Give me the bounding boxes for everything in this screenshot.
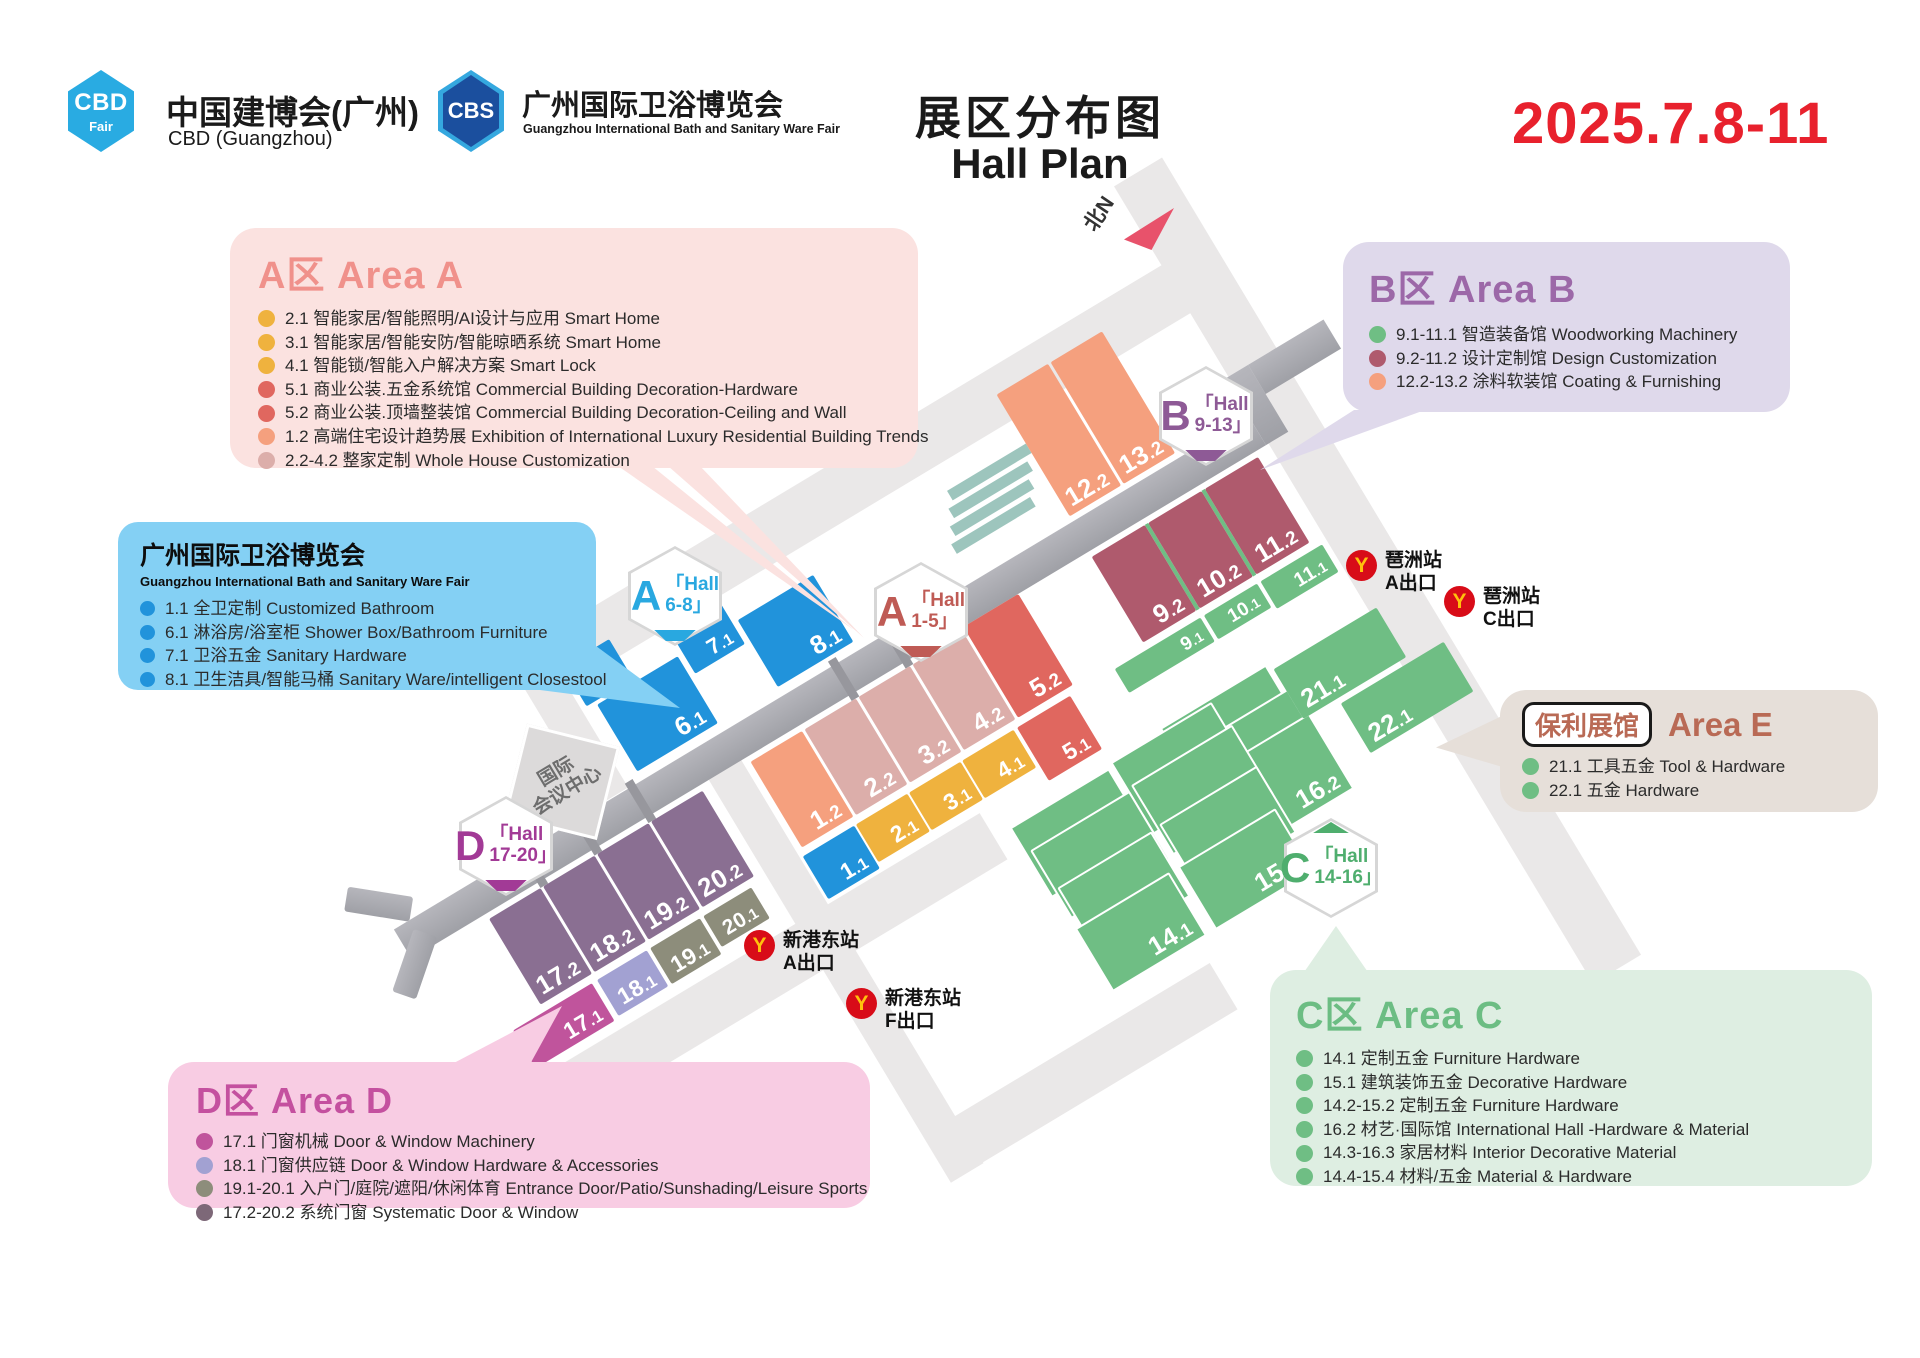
legend-dot-icon xyxy=(1296,1145,1313,1162)
legend-item: 4.1 智能锁/智能入户解决方案 Smart Lock xyxy=(258,354,918,378)
badge-letter: A xyxy=(877,591,907,633)
legend-item: 3.1 智能家居/智能安防/智能晾晒系统 Smart Home xyxy=(258,331,918,355)
street-bottom xyxy=(927,963,1238,1179)
legend-dot-icon xyxy=(258,334,275,351)
metro-logo-icon: Y xyxy=(1346,550,1377,581)
hall-label: 16.2 xyxy=(1291,767,1344,813)
legend-dot-icon xyxy=(258,310,275,327)
hall-label: 19.1 xyxy=(667,936,714,977)
legend-item: 1.1 全卫定制 Customized Bathroom xyxy=(140,597,596,621)
legend-item-text: 3.1 智能家居/智能安防/智能晾晒系统 Smart Home xyxy=(285,331,661,355)
legend-item: 9.1-11.1 智造装备馆 Woodworking Machinery xyxy=(1369,323,1790,347)
hall-label: 5.2 xyxy=(1025,664,1065,703)
legend-area-a-title: A区 Area A xyxy=(258,244,918,299)
legend-item-text: 15.1 建筑装饰五金 Decorative Hardware xyxy=(1323,1071,1627,1095)
hall-label: 4.2 xyxy=(967,698,1007,737)
hall-label: 9.1 xyxy=(1177,626,1207,654)
legend-item-text: 21.1 工具五金 Tool & Hardware xyxy=(1549,755,1785,779)
legend-item-text: 12.2-13.2 涂料软装馆 Coating & Furnishing xyxy=(1396,370,1721,394)
legend-dot-icon xyxy=(1369,326,1386,343)
legend-item-text: 9.2-11.2 设计定制馆 Design Customization xyxy=(1396,347,1717,371)
legend-item-text: 2.2-4.2 整家定制 Whole House Customization xyxy=(285,449,630,473)
road-fork-arm-1 xyxy=(344,887,413,922)
legend-item: 14.2-15.2 定制五金 Furniture Hardware xyxy=(1296,1094,1872,1118)
legend-area-a: A区 Area A 2.1 智能家居/智能照明/AI设计与应用 Smart Ho… xyxy=(230,228,918,468)
hall-label: 5.1 xyxy=(1059,730,1095,764)
legend-item: 2.1 智能家居/智能照明/AI设计与应用 Smart Home xyxy=(258,307,918,331)
metro-exit-琶洲站-C出口: Y琶洲站C出口 xyxy=(1444,586,1540,632)
hall-label: 1.2 xyxy=(805,795,845,834)
legend-bath-subtitle: Guangzhou International Bath and Sanitar… xyxy=(140,574,596,589)
hall-label: 3.2 xyxy=(913,731,953,770)
legend-area-b-items: 9.1-11.1 智造装备馆 Woodworking Machinery9.2-… xyxy=(1369,323,1790,394)
legend-item: 12.2-13.2 涂料软装馆 Coating & Furnishing xyxy=(1369,370,1790,394)
legend-area-d-items: 17.1 门窗机械 Door & Window Machinery18.1 门窗… xyxy=(196,1130,870,1224)
badge-letter: B xyxy=(1160,395,1190,437)
legend-dot-icon xyxy=(1522,758,1539,775)
legend-dot-icon xyxy=(1369,373,1386,390)
badge-letter: D xyxy=(455,825,485,867)
legend-item: 2.2-4.2 整家定制 Whole House Customization xyxy=(258,449,918,473)
hall-label: 9.2 xyxy=(1148,589,1188,628)
legend-dot-icon xyxy=(1296,1097,1313,1114)
hall-label: 2.2 xyxy=(859,763,899,802)
hall-label: 17.1 xyxy=(560,1002,607,1043)
legend-dot-icon xyxy=(196,1157,213,1174)
badge-letter: C xyxy=(1280,847,1310,889)
legend-item: 1.2 高端住宅设计趋势展 Exhibition of Internationa… xyxy=(258,425,918,449)
legend-item-text: 5.1 商业公装.五金系统馆 Commercial Building Decor… xyxy=(285,378,798,402)
metro-exit-label: 琶洲站A出口 xyxy=(1385,550,1442,596)
legend-item-text: 6.1 淋浴房/浴室柜 Shower Box/Bathroom Furnitur… xyxy=(165,621,548,645)
badge-hall-range: 「Hall17-20」 xyxy=(489,825,557,867)
badge-hall-range: 「Hall9-13」 xyxy=(1195,395,1252,437)
legend-dot-icon xyxy=(258,357,275,374)
legend-item-text: 17.1 门窗机械 Door & Window Machinery xyxy=(223,1130,535,1154)
legend-item-text: 17.2-20.2 系统门窗 Systematic Door & Window xyxy=(223,1201,578,1225)
legend-item-text: 14.2-15.2 定制五金 Furniture Hardware xyxy=(1323,1094,1619,1118)
legend-item: 14.1 定制五金 Furniture Hardware xyxy=(1296,1047,1872,1071)
legend-dot-icon xyxy=(258,428,275,445)
metro-exit-label: 新港东站F出口 xyxy=(885,988,961,1034)
legend-item: 9.2-11.2 设计定制馆 Design Customization xyxy=(1369,347,1790,371)
legend-item-text: 14.4-15.4 材料/五金 Material & Hardware xyxy=(1323,1165,1632,1189)
hall-label: 3.1 xyxy=(940,781,976,815)
legend-dot-icon xyxy=(1296,1050,1313,1067)
legend-area-a-items: 2.1 智能家居/智能照明/AI设计与应用 Smart Home3.1 智能家居… xyxy=(258,307,918,472)
badge-hall-range: 「Hall6-8」 xyxy=(665,575,719,617)
hall-label: 8.1 xyxy=(805,620,845,659)
legend-item: 6.1 淋浴房/浴室柜 Shower Box/Bathroom Furnitur… xyxy=(140,621,596,645)
legend-item-text: 14.1 定制五金 Furniture Hardware xyxy=(1323,1047,1580,1071)
hall-label: 2.1 xyxy=(886,813,922,847)
hall-badge-b913: B「Hall9-13」 xyxy=(1159,366,1253,466)
metro-exit-name: A出口 xyxy=(783,953,859,976)
metro-exit-label: 琶洲站C出口 xyxy=(1483,586,1540,632)
metro-exit-name: F出口 xyxy=(885,1011,961,1034)
legend-area-d: D区 Area D 17.1 门窗机械 Door & Window Machin… xyxy=(168,1062,870,1208)
badge-letter: A xyxy=(631,575,661,617)
legend-dot-icon xyxy=(258,405,275,422)
hall-label: 6.1 xyxy=(670,702,710,741)
hall-label: 4.1 xyxy=(993,749,1029,783)
hall-badge-a68: A「Hall6-8」 xyxy=(628,546,722,646)
legend-item: 5.1 商业公装.五金系统馆 Commercial Building Decor… xyxy=(258,378,918,402)
legend-item-text: 16.2 材艺·国际馆 International Hall -Hardware… xyxy=(1323,1118,1749,1142)
badge-content: C「Hall14-16」 xyxy=(1284,818,1378,918)
legend-bath-fair: 广州国际卫浴博览会 Guangzhou International Bath a… xyxy=(118,522,596,690)
legend-dot-icon xyxy=(140,601,155,616)
metro-logo-icon: Y xyxy=(846,988,877,1019)
metro-exit-name: C出口 xyxy=(1483,609,1540,632)
legend-area-d-title: D区 Area D xyxy=(196,1072,870,1124)
legend-item: 17.2-20.2 系统门窗 Systematic Door & Window xyxy=(196,1201,870,1225)
legend-item: 17.1 门窗机械 Door & Window Machinery xyxy=(196,1130,870,1154)
legend-item: 22.1 五金 Hardware xyxy=(1522,779,1878,803)
legend-dot-icon xyxy=(1296,1074,1313,1091)
legend-area-e-pill: 保利展馆 xyxy=(1522,702,1652,747)
metro-station-name: 琶洲站 xyxy=(1483,586,1540,609)
metro-logo-icon: Y xyxy=(1444,586,1475,617)
legend-dot-icon xyxy=(1522,782,1539,799)
legend-item: 21.1 工具五金 Tool & Hardware xyxy=(1522,755,1878,779)
legend-area-e: 保利展馆 Area E 21.1 工具五金 Tool & Hardware22.… xyxy=(1500,690,1878,812)
legend-dot-icon xyxy=(258,452,275,469)
legend-dot-icon xyxy=(196,1133,213,1150)
hall-plan-poster: CBD Fair 中国建博会(广州) CBD (Guangzhou) CBS 广… xyxy=(0,0,1920,1358)
legend-item-text: 2.1 智能家居/智能照明/AI设计与应用 Smart Home xyxy=(285,307,660,331)
metro-exit-新港东站-A出口: Y新港东站A出口 xyxy=(744,930,859,976)
legend-area-c-title: C区 Area C xyxy=(1296,984,1872,1039)
legend-item: 5.2 商业公装.顶墙整装馆 Commercial Building Decor… xyxy=(258,401,918,425)
metro-station-name: 琶洲站 xyxy=(1385,550,1442,573)
legend-item: 14.4-15.4 材料/五金 Material & Hardware xyxy=(1296,1165,1872,1189)
legend-item: 14.3-16.3 家居材料 Interior Decorative Mater… xyxy=(1296,1141,1872,1165)
hall-label: 22.1 xyxy=(1363,700,1416,746)
legend-area-e-items: 21.1 工具五金 Tool & Hardware22.1 五金 Hardwar… xyxy=(1522,755,1878,802)
hall-badge-c1416: C「Hall14-16」 xyxy=(1284,818,1378,918)
metro-station-name: 新港东站 xyxy=(885,988,961,1011)
metro-exit-name: A出口 xyxy=(1385,573,1442,596)
metro-exit-新港东站-F出口: Y新港东站F出口 xyxy=(846,988,961,1034)
legend-item-text: 14.3-16.3 家居材料 Interior Decorative Mater… xyxy=(1323,1141,1676,1165)
legend-dot-icon xyxy=(1296,1121,1313,1138)
legend-item-text: 1.2 高端住宅设计趋势展 Exhibition of Internationa… xyxy=(285,425,928,449)
legend-area-b-title: B区 Area B xyxy=(1369,258,1790,313)
metro-station-name: 新港东站 xyxy=(783,930,859,953)
legend-item-text: 8.1 卫生洁具/智能马桶 Sanitary Ware/intelligent … xyxy=(165,668,607,692)
hall-label: 10.1 xyxy=(1224,592,1263,626)
legend-area-c-items: 14.1 定制五金 Furniture Hardware15.1 建筑装饰五金 … xyxy=(1296,1047,1872,1189)
legend-item-text: 18.1 门窗供应链 Door & Window Hardware & Acce… xyxy=(223,1154,659,1178)
badge-hall-range: 「Hall14-16」 xyxy=(1314,847,1382,889)
metro-logo-icon: Y xyxy=(744,930,775,961)
legend-item: 8.1 卫生洁具/智能马桶 Sanitary Ware/intelligent … xyxy=(140,668,596,692)
legend-item-text: 1.1 全卫定制 Customized Bathroom xyxy=(165,597,434,621)
legend-item-text: 4.1 智能锁/智能入户解决方案 Smart Lock xyxy=(285,354,596,378)
legend-dot-icon xyxy=(1369,350,1386,367)
hall-label: 18.1 xyxy=(613,968,660,1009)
legend-item: 16.2 材艺·国际馆 International Hall -Hardware… xyxy=(1296,1118,1872,1142)
badge-hall-range: 「Hall1-5」 xyxy=(911,591,965,633)
legend-bath-title: 广州国际卫浴博览会 xyxy=(140,536,596,572)
metro-exit-label: 新港东站A出口 xyxy=(783,930,859,976)
legend-item: 15.1 建筑装饰五金 Decorative Hardware xyxy=(1296,1071,1872,1095)
legend-bath-items: 1.1 全卫定制 Customized Bathroom6.1 淋浴房/浴室柜 … xyxy=(140,597,596,691)
legend-dot-icon xyxy=(196,1180,213,1197)
cbd-logo-abbr: CBD xyxy=(74,89,128,117)
cbd-fair-logo-icon: CBD Fair xyxy=(68,70,134,152)
metro-exit-琶洲站-A出口: Y琶洲站A出口 xyxy=(1346,550,1442,596)
legend-dot-icon xyxy=(196,1204,213,1221)
legend-item: 19.1-20.1 入户门/庭院/遮阳/休闲体育 Entrance Door/P… xyxy=(196,1177,870,1201)
legend-item-text: 22.1 五金 Hardware xyxy=(1549,779,1699,803)
hall-label: 11.1 xyxy=(1291,556,1331,591)
legend-item: 7.1 卫浴五金 Sanitary Hardware xyxy=(140,644,596,668)
legend-dot-icon xyxy=(258,381,275,398)
cbd-logo-sub: Fair xyxy=(89,119,113,134)
legend-dot-icon xyxy=(140,672,155,687)
legend-item-text: 5.2 商业公装.顶墙整装馆 Commercial Building Decor… xyxy=(285,401,847,425)
legend-area-c: C区 Area C 14.1 定制五金 Furniture Hardware15… xyxy=(1270,970,1872,1186)
legend-area-b: B区 Area B 9.1-11.1 智造装备馆 Woodworking Mac… xyxy=(1343,242,1790,412)
legend-item-text: 7.1 卫浴五金 Sanitary Hardware xyxy=(165,644,407,668)
legend-dot-icon xyxy=(140,625,155,640)
hall-badge-d1720: D「Hall17-20」 xyxy=(459,796,553,896)
hall-badge-a15: A「Hall1-5」 xyxy=(874,562,968,662)
hall-label: 14.1 xyxy=(1144,914,1197,960)
legend-dot-icon xyxy=(1296,1168,1313,1185)
hall-label: 1.1 xyxy=(836,850,872,884)
legend-item-text: 19.1-20.1 入户门/庭院/遮阳/休闲体育 Entrance Door/P… xyxy=(223,1177,867,1201)
legend-dot-icon xyxy=(140,648,155,663)
legend-area-e-title: Area E xyxy=(1668,706,1773,744)
legend-item-text: 9.1-11.1 智造装备馆 Woodworking Machinery xyxy=(1396,323,1737,347)
legend-item: 18.1 门窗供应链 Door & Window Hardware & Acce… xyxy=(196,1154,870,1178)
